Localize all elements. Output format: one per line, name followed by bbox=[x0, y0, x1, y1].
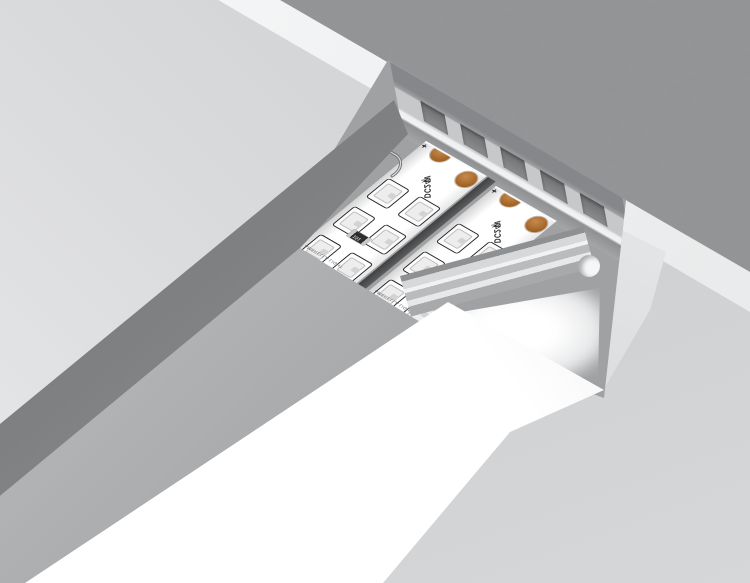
fin-groove bbox=[420, 101, 448, 136]
recessed-led-profile-render: + DC24V ✂ 151 151 AMBRELLA LIGHT + bbox=[0, 0, 750, 583]
diffuser-clip-groove bbox=[578, 255, 600, 277]
fin-groove bbox=[540, 170, 568, 205]
fin-groove bbox=[460, 124, 488, 159]
fin-groove bbox=[580, 193, 608, 228]
fin-groove bbox=[500, 147, 528, 182]
